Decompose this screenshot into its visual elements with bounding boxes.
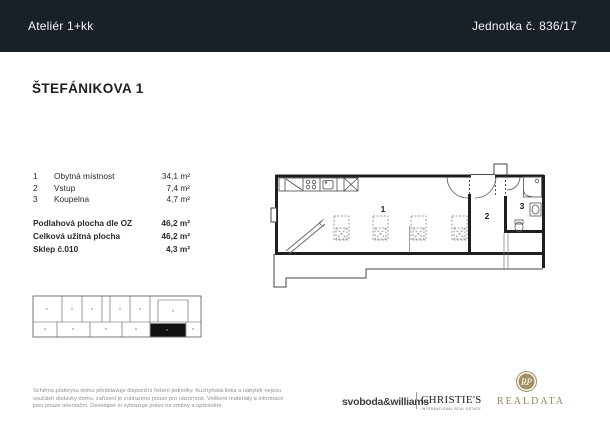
total-value: 4,3 m²	[166, 244, 190, 257]
room-label-3: 3	[520, 201, 525, 211]
building-overview	[30, 292, 205, 342]
realdata-wordmark: REALDATA	[497, 396, 565, 407]
total-label: Podlahová plocha dle OZ	[33, 218, 161, 231]
ramp-icon	[286, 219, 325, 254]
christies-wordmark: CHRISTIE'S	[421, 394, 482, 406]
realdata-monogram-icon: RP	[516, 371, 537, 392]
room-number: 3	[33, 194, 54, 204]
kitchen-line-icon	[279, 178, 358, 191]
disclaimer-line: Schéma půdorysu domu představuje dispozi…	[33, 388, 283, 396]
total-usable-area-row: Celková užitná plocha 46,2 m²	[33, 231, 190, 244]
room-label-1: 1	[381, 204, 386, 214]
total-value: 46,2 m²	[161, 231, 190, 244]
brochure-page: Ateliér 1+kk Jednotka č. 836/17 ŠTEFÁNIK…	[0, 0, 610, 431]
furniture-icons	[334, 216, 467, 240]
disclaimer-line: jsou pouze orientační. Developer si vyhr…	[33, 403, 283, 411]
disclaimer-text: Schéma půdorysu domu představuje dispozi…	[33, 388, 283, 411]
legend-row-2: 2 Vstup 7,4 m²	[33, 183, 190, 195]
room-area: 7,4 m²	[166, 183, 190, 193]
highlighted-unit	[151, 324, 186, 337]
christies-subtitle: INTERNATIONAL REAL ESTATE	[422, 407, 482, 411]
room-label-2: 2	[485, 211, 490, 221]
room-legend: 1 Obytná místnost 34,1 m² 2 Vstup 7,4 m²…	[33, 171, 190, 257]
room-area: 34,1 m²	[162, 171, 190, 181]
wall-details	[271, 164, 543, 287]
area-totals: Podlahová plocha dle OZ 46,2 m² Celková …	[33, 218, 190, 257]
floorplan: 1 2 3	[260, 150, 560, 295]
room-number: 1	[33, 171, 54, 181]
room-name: Obytná místnost	[54, 171, 162, 181]
legend-row-3: 3 Koupelna 4,7 m²	[33, 194, 190, 206]
total-floor-area-row: Podlahová plocha dle OZ 46,2 m²	[33, 218, 190, 231]
page-title: ŠTEFÁNIKOVA 1	[32, 81, 144, 96]
room-name: Koupelna	[54, 194, 166, 204]
total-label: Celková užitná plocha	[33, 231, 161, 244]
walls	[275, 175, 545, 268]
legend-row-1: 1 Obytná místnost 34,1 m²	[33, 171, 190, 183]
header-bar: Ateliér 1+kk Jednotka č. 836/17	[0, 0, 610, 52]
room-area: 4,7 m²	[166, 194, 190, 204]
disclaimer-line: součástí dodávky domu, zařízení je zobra…	[33, 396, 283, 404]
unit-type: Ateliér 1+kk	[28, 19, 93, 33]
total-value: 46,2 m²	[161, 218, 190, 231]
christies-logo: CHRISTIE'S INTERNATIONAL REAL ESTATE	[421, 394, 482, 411]
cellar-row: Sklep č.010 4,3 m²	[33, 244, 190, 257]
total-label: Sklep č.010	[33, 244, 166, 257]
unit-number: Jednotka č. 836/17	[472, 19, 577, 33]
door-arc-icon	[447, 177, 520, 198]
room-name: Vstup	[54, 183, 166, 193]
brand-divider	[416, 392, 417, 409]
room-number: 2	[33, 183, 54, 193]
